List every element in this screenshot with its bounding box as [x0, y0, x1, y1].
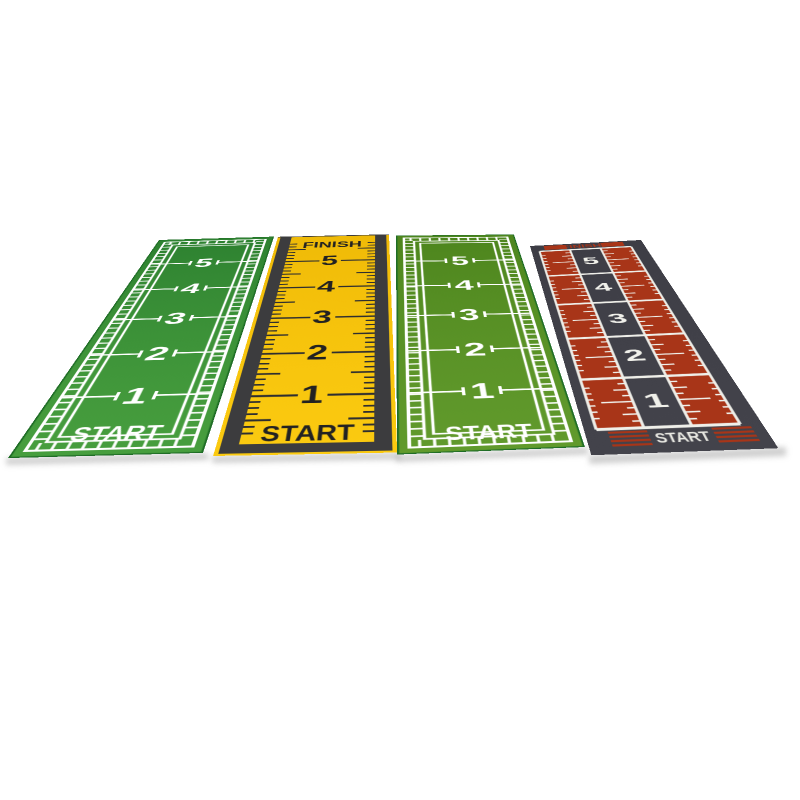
- svg-text:1: 1: [468, 378, 496, 404]
- svg-text:4: 4: [316, 277, 337, 295]
- svg-text:START: START: [652, 428, 715, 446]
- svg-text:5: 5: [320, 252, 339, 268]
- svg-text:3: 3: [311, 306, 333, 327]
- svg-text:5: 5: [450, 254, 470, 268]
- svg-text:START: START: [258, 422, 355, 448]
- svg-text:2: 2: [463, 339, 488, 361]
- svg-text:START: START: [65, 420, 167, 446]
- svg-text:4: 4: [453, 277, 475, 293]
- svg-text:FINISH: FINISH: [302, 240, 362, 250]
- svg-text:3: 3: [458, 305, 481, 324]
- svg-text:START: START: [444, 421, 535, 446]
- svg-text:1: 1: [298, 380, 325, 410]
- svg-text:2: 2: [305, 340, 329, 365]
